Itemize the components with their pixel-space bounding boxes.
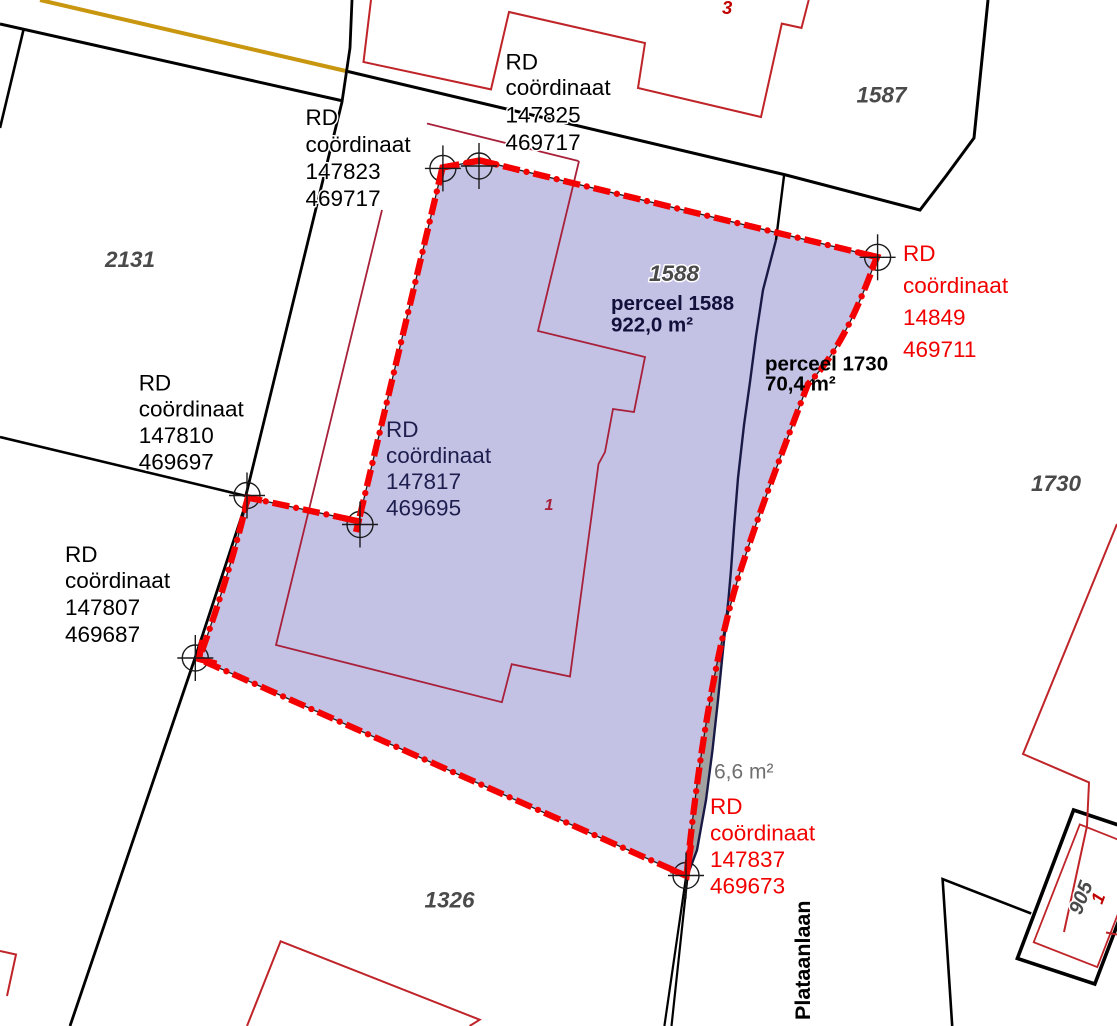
svg-text:1588: 1588 <box>649 261 700 286</box>
svg-text:coördinaat: coördinaat <box>306 132 412 157</box>
svg-text:Plataanlaan: Plataanlaan <box>791 901 815 1021</box>
svg-text:6,6 m²: 6,6 m² <box>714 761 774 784</box>
svg-text:469673: 469673 <box>710 874 785 899</box>
svg-text:RD: RD <box>903 241 936 266</box>
svg-text:147807: 147807 <box>65 595 140 620</box>
svg-text:469687: 469687 <box>65 622 140 647</box>
svg-text:3: 3 <box>722 0 733 18</box>
svg-text:coördinaat: coördinaat <box>65 568 171 593</box>
svg-text:RD: RD <box>386 417 419 442</box>
svg-text:1326: 1326 <box>424 888 475 913</box>
svg-text:1730: 1730 <box>1031 471 1082 496</box>
svg-text:147823: 147823 <box>306 159 381 184</box>
svg-text:147825: 147825 <box>506 103 581 128</box>
svg-text:RD: RD <box>710 794 743 819</box>
svg-text:1587: 1587 <box>856 83 908 108</box>
svg-text:2131: 2131 <box>104 247 155 272</box>
svg-text:469695: 469695 <box>386 496 461 521</box>
svg-text:coördinaat: coördinaat <box>506 75 612 100</box>
svg-text:147817: 147817 <box>386 469 461 494</box>
svg-text:coördinaat: coördinaat <box>710 821 816 846</box>
svg-text:perceel 1588: perceel 1588 <box>611 292 734 315</box>
svg-text:coördinaat: coördinaat <box>386 443 492 468</box>
svg-text:70,4 m²: 70,4 m² <box>765 373 836 396</box>
svg-text:922,0 m²: 922,0 m² <box>611 314 693 337</box>
svg-text:469717: 469717 <box>306 186 381 211</box>
svg-text:469711: 469711 <box>903 337 976 362</box>
svg-text:147810: 147810 <box>139 423 214 448</box>
svg-text:1: 1 <box>545 497 554 514</box>
svg-text:14849: 14849 <box>903 305 966 330</box>
svg-text:coördinaat: coördinaat <box>903 273 1009 298</box>
svg-text:RD: RD <box>139 371 172 396</box>
svg-text:RD: RD <box>306 105 339 130</box>
svg-text:469717: 469717 <box>506 130 581 155</box>
svg-text:RD: RD <box>65 542 98 567</box>
svg-text:469697: 469697 <box>139 450 214 475</box>
svg-text:RD: RD <box>506 50 539 75</box>
svg-text:147837: 147837 <box>710 847 785 872</box>
svg-text:coördinaat: coördinaat <box>139 397 245 422</box>
